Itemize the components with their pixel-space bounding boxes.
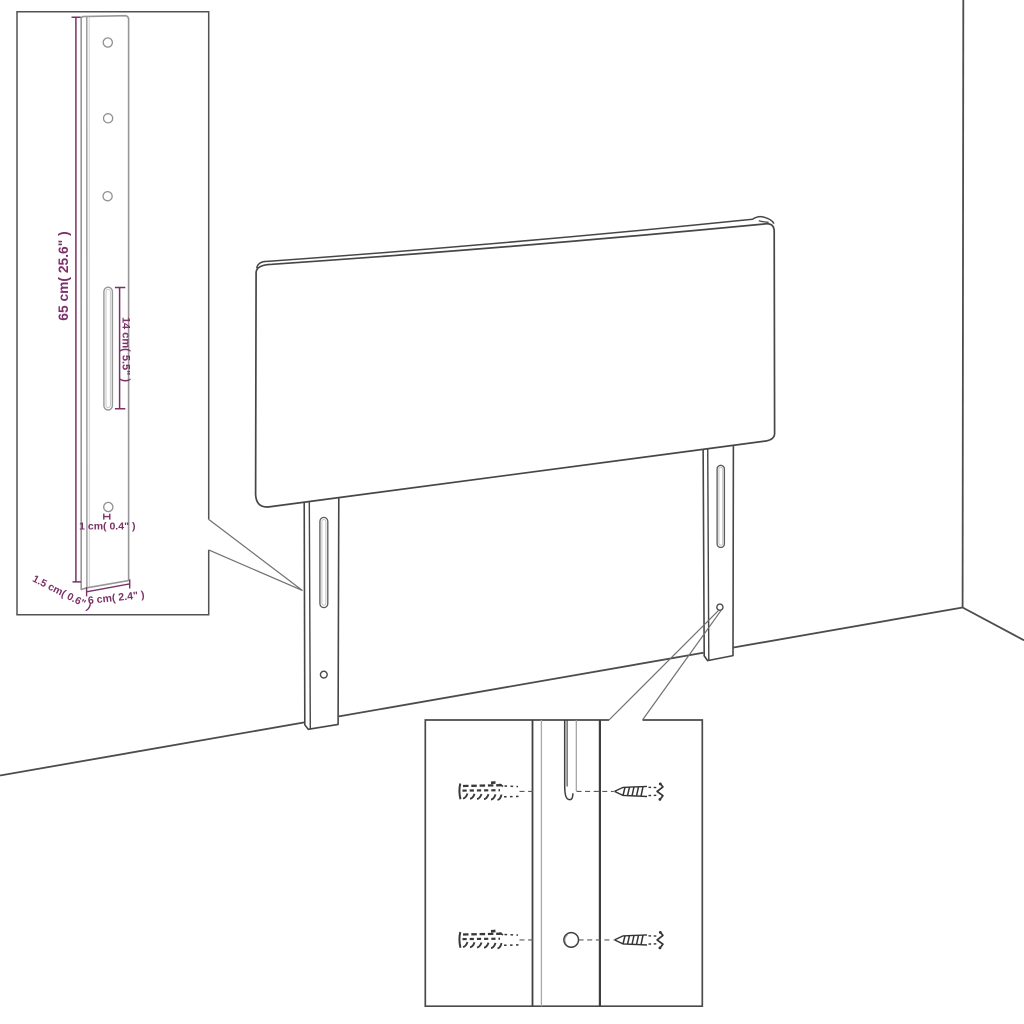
svg-text:14 cm( 5.5" ): 14 cm( 5.5" ) — [120, 317, 132, 382]
svg-text:1 cm( 0.4" ): 1 cm( 0.4" ) — [79, 521, 135, 533]
svg-text:65 cm( 25.6" ): 65 cm( 25.6" ) — [56, 231, 71, 320]
